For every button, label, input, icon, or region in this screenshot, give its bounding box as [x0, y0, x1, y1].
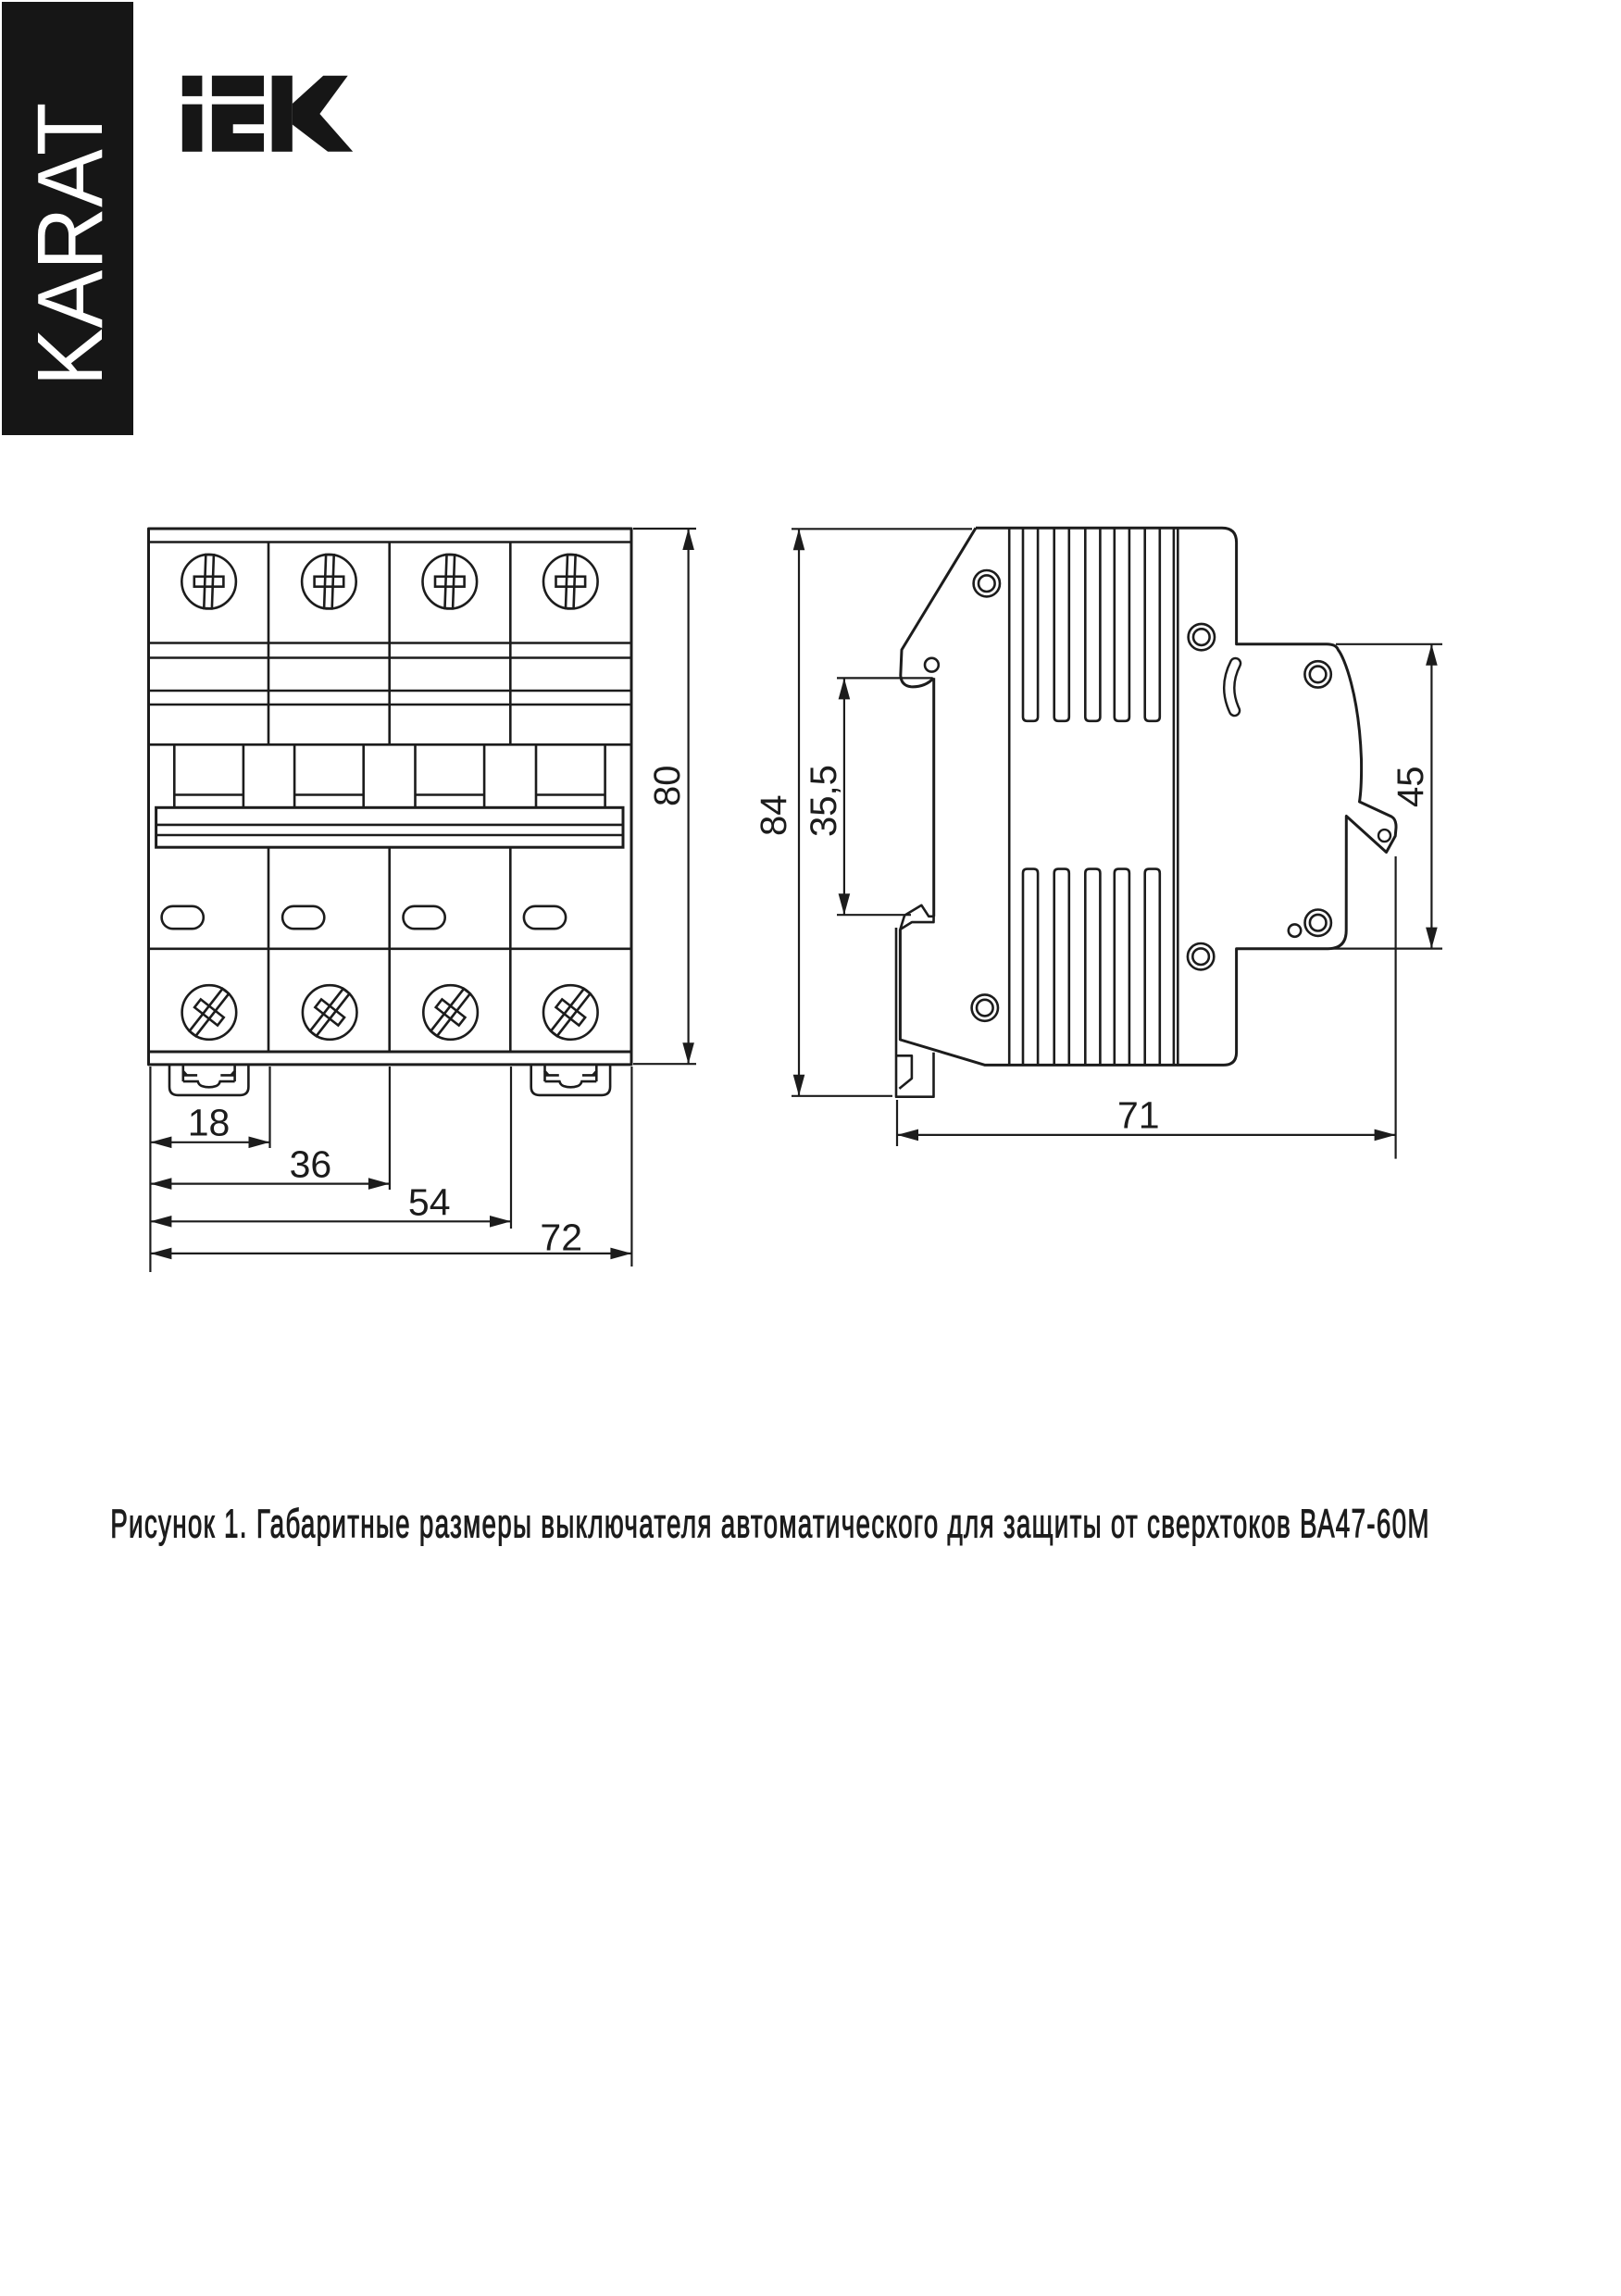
svg-text:84: 84	[754, 795, 794, 837]
svg-text:Рисунок 1. Габаритные размеры: Рисунок 1. Габаритные размеры выключател…	[110, 1501, 1428, 1546]
svg-text:80: 80	[647, 766, 688, 807]
svg-text:35,5: 35,5	[804, 765, 844, 837]
svg-text:45: 45	[1390, 767, 1431, 808]
svg-text:18: 18	[188, 1102, 231, 1144]
svg-text:72: 72	[540, 1217, 582, 1259]
svg-text:KARAT: KARAT	[19, 103, 122, 387]
svg-text:36: 36	[290, 1143, 332, 1186]
svg-text:71: 71	[1117, 1094, 1160, 1137]
svg-text:54: 54	[408, 1181, 451, 1224]
